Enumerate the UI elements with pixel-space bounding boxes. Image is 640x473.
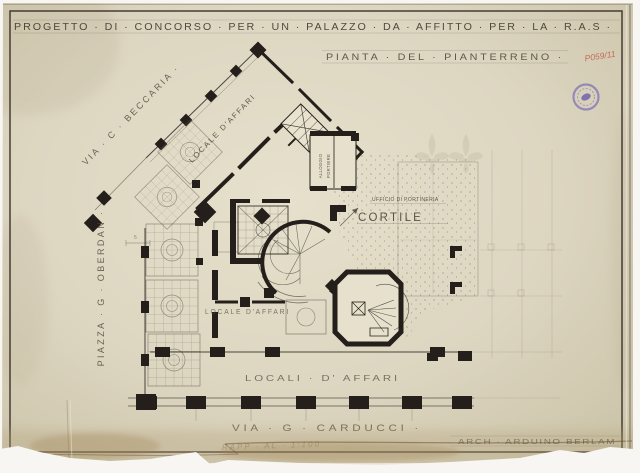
- business-wing-bottom-label: LOCALI · D' AFFARI: [245, 374, 400, 383]
- porter-lodging-label-1: ALLOGGIO: [318, 153, 323, 178]
- drawing-canvas: PROGETTO · DI · CONCORSO · PER · UN · PA…: [0, 0, 640, 473]
- dimension-number: 5: [134, 235, 137, 241]
- courtyard-label: CORTILE: [358, 212, 423, 224]
- porter-lodging-label-2: PORTIERE: [326, 154, 331, 178]
- sheet-subtitle: PIANTA · DEL · PIANTERRENO ·: [326, 52, 564, 63]
- business-hall-label: LOCALE D'AFFARI: [205, 307, 290, 316]
- scanned-drawing-sheet: PROGETTO · DI · CONCORSO · PER · UN · PA…: [0, 0, 640, 473]
- sheet-title: PROGETTO · DI · CONCORSO · PER · UN · PA…: [14, 22, 612, 33]
- porter-office-note: UFFICIO DI PORTINERIA: [372, 197, 439, 203]
- street-label-oberdan: PIAZZA · G · OBERDAN ·: [96, 210, 106, 367]
- stair-tower-octagon: [335, 272, 409, 344]
